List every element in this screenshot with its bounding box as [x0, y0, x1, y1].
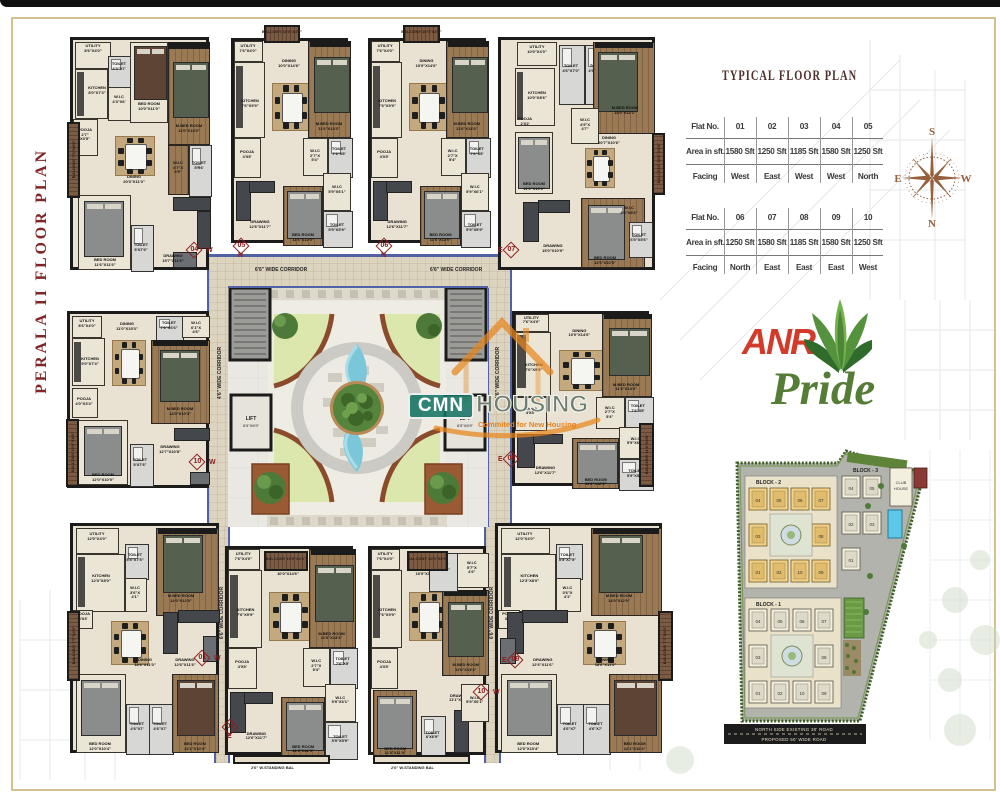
svg-text:CLUB: CLUB: [896, 480, 907, 485]
svg-text:04: 04: [755, 498, 761, 503]
svg-text:N: N: [928, 218, 936, 227]
svg-text:03: 03: [755, 655, 761, 660]
svg-text:S: S: [929, 127, 935, 138]
svg-text:02: 02: [776, 570, 782, 575]
svg-text:6'5"X6'9": 6'5"X6'9": [243, 423, 260, 428]
svg-text:07: 07: [821, 619, 827, 624]
svg-text:01: 01: [848, 558, 854, 563]
svg-text:02: 02: [777, 691, 783, 696]
svg-text:HOUSE: HOUSE: [894, 486, 909, 491]
svg-text:10: 10: [799, 691, 805, 696]
svg-text:10: 10: [797, 570, 803, 575]
svg-text:09: 09: [818, 570, 824, 575]
svg-text:01: 01: [755, 570, 761, 575]
svg-text:05: 05: [776, 498, 782, 503]
svg-text:06: 06: [797, 498, 803, 503]
svg-text:LIFT: LIFT: [246, 416, 257, 422]
svg-text:BLOCK - 1: BLOCK - 1: [756, 602, 781, 608]
svg-text:NORTH SIDE EXISTING 30' ROAD: NORTH SIDE EXISTING 30' ROAD: [755, 727, 833, 732]
svg-text:BLOCK - 2: BLOCK - 2: [756, 480, 781, 486]
svg-text:05: 05: [777, 619, 783, 624]
svg-text:PROPOSED 50' WIDE ROAD: PROPOSED 50' WIDE ROAD: [761, 737, 826, 742]
svg-text:W: W: [961, 173, 972, 185]
svg-text:E: E: [894, 173, 901, 185]
svg-text:03: 03: [755, 534, 761, 539]
svg-text:07: 07: [818, 498, 824, 503]
svg-text:09: 09: [821, 691, 827, 696]
svg-text:03: 03: [869, 522, 875, 527]
svg-text:01: 01: [755, 691, 761, 696]
svg-text:08: 08: [821, 655, 827, 660]
svg-text:02: 02: [848, 522, 854, 527]
svg-text:06: 06: [799, 619, 805, 624]
svg-text:05: 05: [869, 486, 875, 491]
svg-text:04: 04: [848, 486, 854, 491]
svg-text:08: 08: [818, 534, 824, 539]
svg-text:BLOCK - 3: BLOCK - 3: [853, 468, 878, 474]
svg-text:04: 04: [755, 619, 761, 624]
